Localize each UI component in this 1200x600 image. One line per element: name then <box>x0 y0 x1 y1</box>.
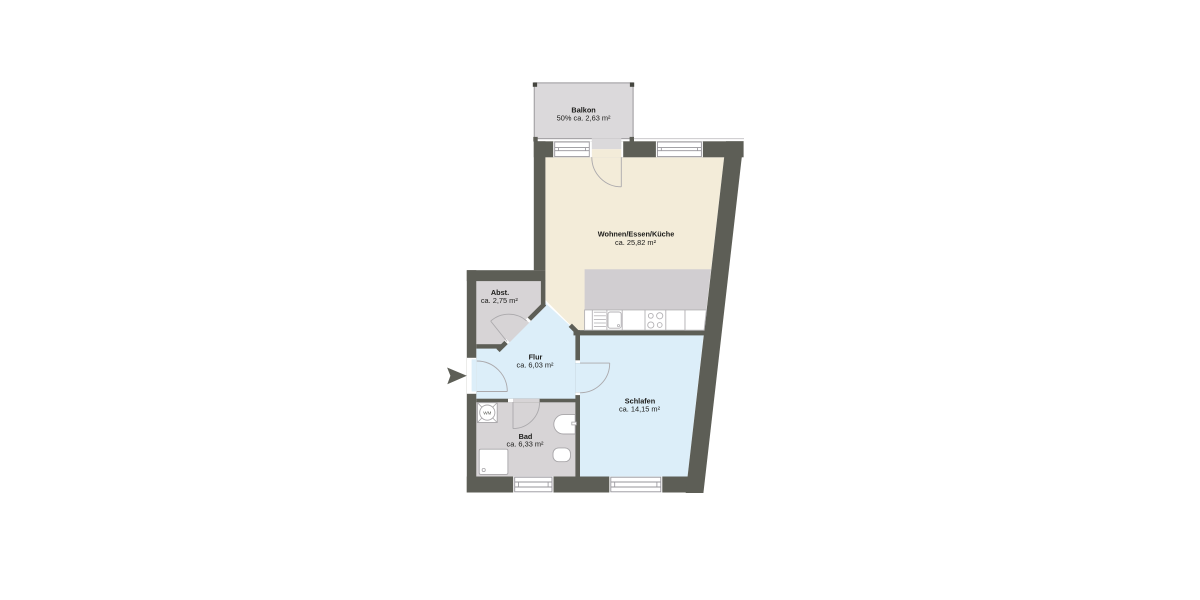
svg-text:WM: WM <box>483 410 491 415</box>
svg-text:ca. 6,03 m²: ca. 6,03 m² <box>517 361 555 370</box>
svg-text:50% ca. 2,63 m²: 50% ca. 2,63 m² <box>557 113 611 122</box>
svg-text:ca. 2,75 m²: ca. 2,75 m² <box>481 296 519 305</box>
svg-text:ca. 25,82 m²: ca. 25,82 m² <box>615 238 657 247</box>
svg-text:ca. 14,15 m²: ca. 14,15 m² <box>619 405 661 414</box>
svg-text:ca. 6,33 m²: ca. 6,33 m² <box>507 440 545 449</box>
